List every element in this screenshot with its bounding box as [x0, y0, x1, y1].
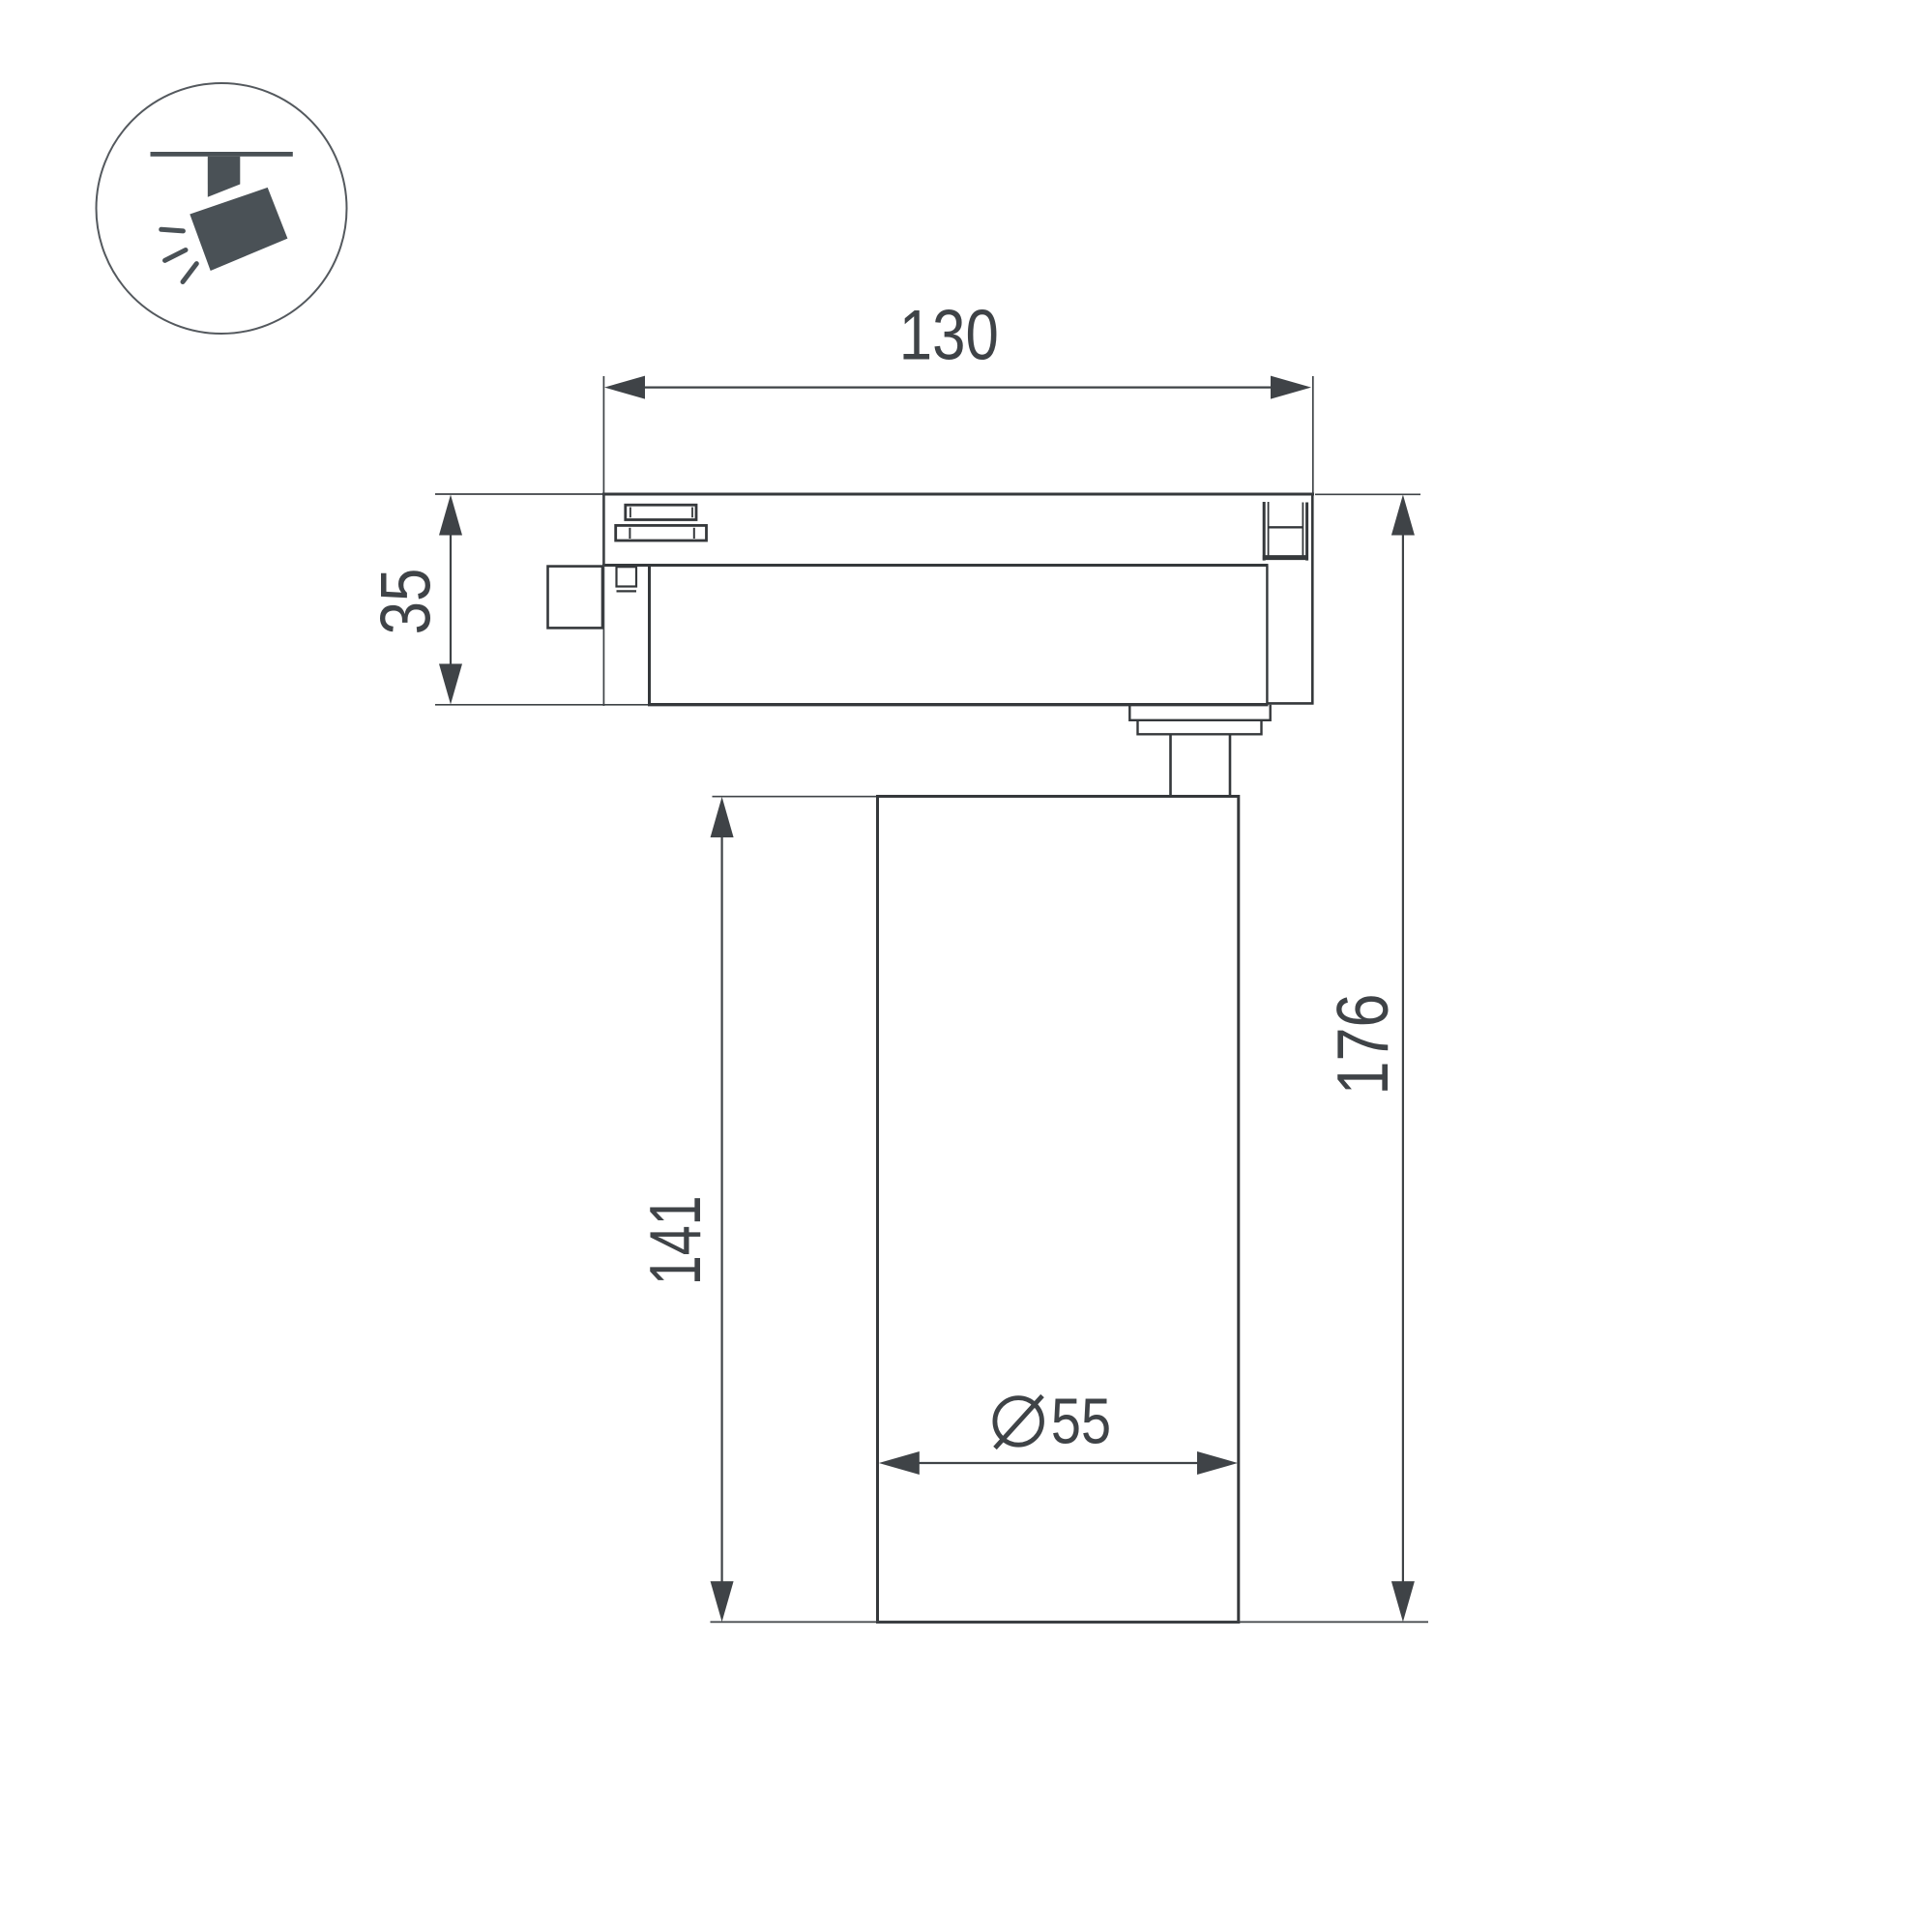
svg-text:176: 176 — [1322, 993, 1403, 1095]
svg-text:35: 35 — [367, 569, 446, 635]
svg-text:55: 55 — [1051, 1386, 1111, 1458]
svg-text:130: 130 — [899, 297, 999, 375]
svg-text:141: 141 — [634, 1195, 716, 1285]
